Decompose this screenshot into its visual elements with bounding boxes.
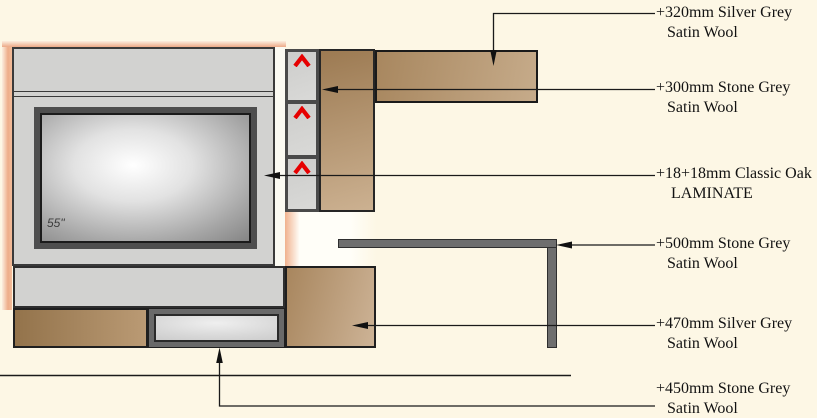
elevation-drawing: 55"	[0, 0, 817, 418]
panel-groove-line	[12, 91, 275, 97]
annotation-line2: Satin Wool	[656, 23, 817, 43]
annotation-450mm: +450mm Stone Grey Satin Wool	[656, 379, 817, 418]
chevron-up-icon	[291, 106, 313, 119]
annotation-470mm: +470mm Silver Grey Satin Wool	[656, 314, 817, 354]
shelf-cell	[288, 159, 316, 209]
tv-screen	[40, 113, 251, 243]
annotation-line2: LAMINATE	[656, 184, 817, 204]
base-wood-left	[13, 308, 148, 348]
drawer-front	[154, 314, 279, 342]
annotation-line1: +470mm Silver Grey	[656, 315, 792, 332]
chevron-up-icon	[291, 54, 313, 67]
annotation-300mm: +300mm Stone Grey Satin Wool	[656, 78, 817, 118]
annotation-500mm: +500mm Stone Grey Satin Wool	[656, 234, 817, 274]
annotation-line1: +320mm Silver Grey	[656, 4, 792, 21]
peach-glow-left	[2, 42, 12, 310]
shelf-cell	[288, 104, 316, 155]
chevron-up-icon	[291, 161, 313, 174]
annotation-line2: Satin Wool	[656, 334, 817, 354]
panel-side-gap	[275, 47, 285, 266]
annotation-line1: +450mm Stone Grey	[656, 380, 790, 397]
tv	[34, 107, 257, 249]
shelf-column	[285, 49, 319, 212]
base-grey-band	[13, 266, 285, 308]
annotation-line2: Satin Wool	[656, 98, 817, 118]
shelf-cell	[288, 52, 316, 100]
annotation-line2: Satin Wool	[656, 399, 817, 418]
drawer	[148, 308, 285, 348]
side-table-leg	[547, 247, 557, 348]
annotation-320mm: +320mm Silver Grey Satin Wool	[656, 3, 817, 43]
annotation-line1: +300mm Stone Grey	[656, 79, 790, 96]
base-wood-right	[285, 266, 376, 348]
top-wood-slab	[375, 50, 538, 103]
annotation-laminate: +18+18mm Classic Oak LAMINATE	[656, 164, 817, 204]
annotation-line1: +500mm Stone Grey	[656, 235, 790, 252]
annotation-line2: Satin Wool	[656, 254, 817, 274]
annotation-line1: +18+18mm Classic Oak	[656, 165, 812, 182]
side-table-top	[338, 239, 557, 248]
wood-column	[319, 49, 375, 212]
tv-size-label: 55"	[47, 216, 65, 230]
